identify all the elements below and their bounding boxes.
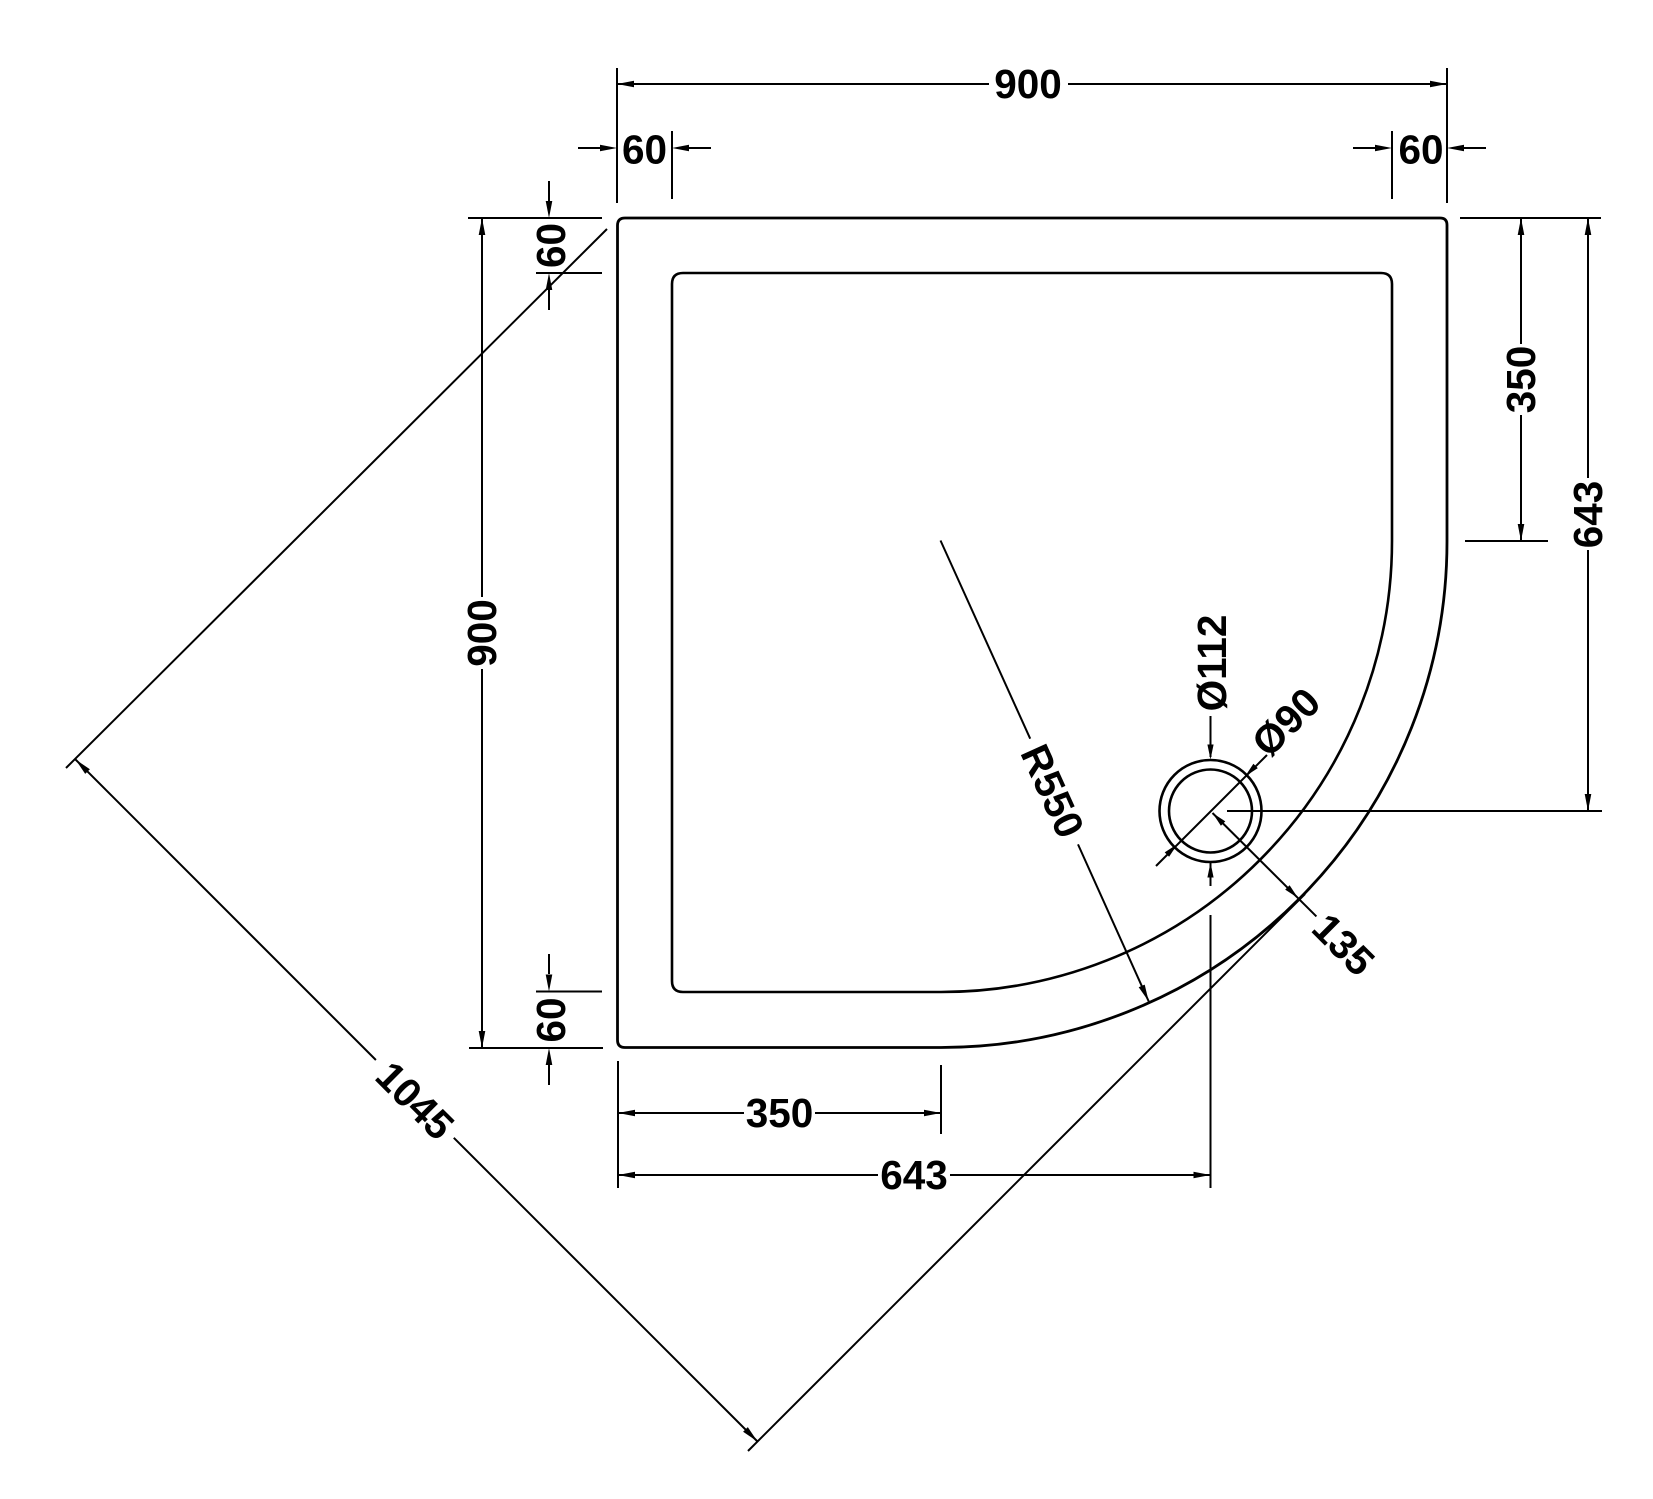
svg-text:60: 60 bbox=[1398, 127, 1443, 173]
svg-text:Ø112: Ø112 bbox=[1189, 615, 1235, 712]
svg-text:643: 643 bbox=[880, 1152, 948, 1198]
svg-text:60: 60 bbox=[528, 223, 574, 268]
svg-text:60: 60 bbox=[622, 127, 667, 173]
svg-text:350: 350 bbox=[746, 1090, 814, 1136]
svg-text:900: 900 bbox=[994, 61, 1062, 107]
svg-text:643: 643 bbox=[1565, 481, 1611, 549]
svg-text:60: 60 bbox=[528, 997, 574, 1042]
svg-text:350: 350 bbox=[1498, 346, 1544, 414]
svg-text:900: 900 bbox=[459, 599, 505, 667]
